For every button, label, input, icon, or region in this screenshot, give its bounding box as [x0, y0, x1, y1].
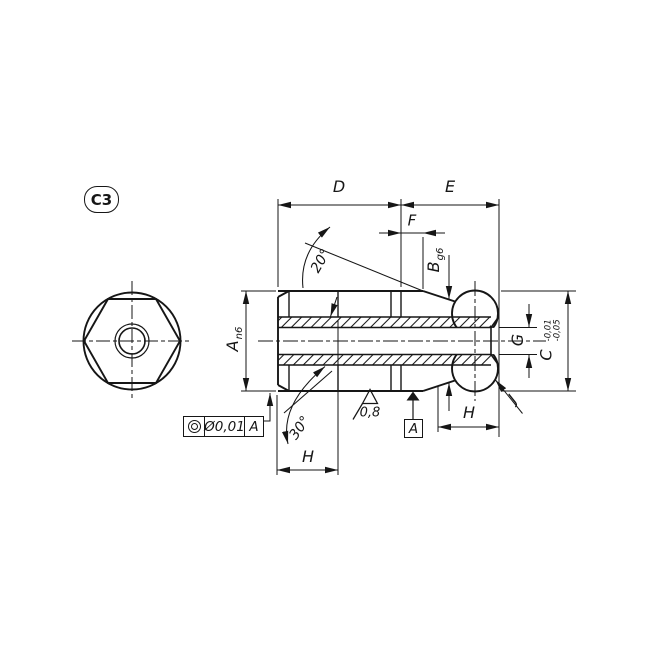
- dim-label-h-hex: H: [302, 449, 314, 465]
- dim-b-letter: B: [424, 261, 443, 272]
- dim-c-letter: C: [537, 349, 556, 360]
- fcf-tolerance-value: Ø0,01: [204, 417, 244, 436]
- variant-badge: C3: [84, 186, 119, 213]
- surface-roughness-value: 0,8: [360, 407, 381, 420]
- fcf-datum-ref: A: [244, 417, 263, 436]
- technical-drawing-page: C3 D E F An6 Bg6 G C -0,01 -0,05 J 20° 3…: [0, 0, 654, 654]
- dim-b-fit: g6: [436, 248, 446, 261]
- section-view: [258, 281, 546, 401]
- end-view-centerlines: [72, 281, 192, 401]
- dim-label-d: D: [333, 179, 345, 195]
- dim-label-f: F: [408, 214, 417, 229]
- end-view: [72, 281, 192, 401]
- dim-label-b: Bg6: [426, 248, 442, 273]
- section-centerlines: [258, 281, 546, 401]
- angle-annotations: [284, 227, 423, 444]
- dim-c-tol-lower: -0,05: [554, 319, 563, 341]
- datum-a-symbol: [407, 392, 420, 420]
- feature-control-frame: Ø0,01 A: [183, 416, 264, 437]
- dim-label-e: E: [445, 179, 455, 195]
- chamfer-construction-line: [284, 371, 332, 413]
- dim-a-letter: A: [223, 340, 242, 351]
- leader-fcf: [263, 393, 270, 421]
- datum-a-flag: A: [404, 419, 423, 438]
- hatch-band-bottom: [278, 355, 491, 366]
- concentricity-icon: [184, 417, 204, 436]
- dim-label-c: C -0,01 -0,05: [539, 319, 564, 360]
- dim-c-tolerance: -0,01 -0,05: [545, 319, 563, 341]
- hatch-band-top: [278, 317, 491, 328]
- dim-label-g: G: [510, 334, 526, 346]
- dim-label-h-ball: H: [463, 405, 475, 421]
- dim-a-fit: n6: [235, 327, 245, 340]
- dim-label-a: An6: [225, 327, 241, 352]
